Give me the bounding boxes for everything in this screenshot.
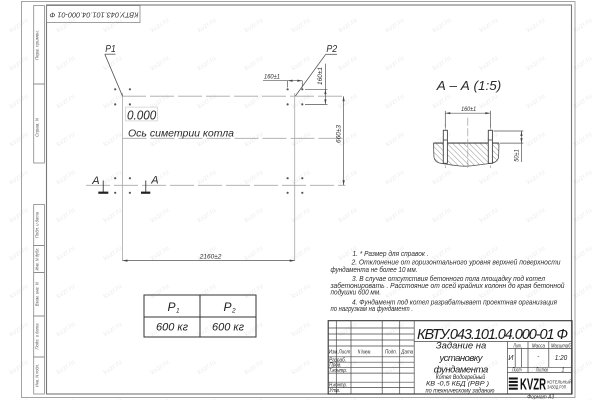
svg-text:50±1: 50±1 (513, 149, 520, 162)
svg-text:Лист: Лист (511, 368, 522, 374)
svg-text:600 кг: 600 кг (212, 322, 245, 334)
svg-text:Подп. и дата: Подп. и дата (34, 323, 39, 349)
svg-text:подушки 600 мм.: подушки 600 мм. (331, 288, 382, 297)
svg-text:Инв. N дубл.: Инв. N дубл. (34, 248, 39, 271)
svg-text:1:20: 1:20 (555, 355, 568, 362)
svg-text:установку: установку (439, 353, 484, 364)
svg-text:Дата: Дата (400, 349, 413, 355)
svg-text:Ось симетрии котла: Ось симетрии котла (128, 128, 234, 140)
svg-text:600 кг: 600 кг (156, 322, 189, 334)
svg-text:A: A (91, 175, 99, 187)
svg-text:А – А (1:5): А – А (1:5) (436, 78, 502, 93)
svg-text:фундамента: фундамента (434, 365, 489, 376)
svg-text:Котел Водогрейный: Котел Водогрейный (436, 374, 486, 381)
svg-text:KVZR: KVZR (520, 377, 546, 394)
svg-text:Т.контр.: Т.контр. (329, 368, 347, 374)
svg-text:1: 1 (562, 368, 565, 374)
svg-text:ЗАВОД РЭП: ЗАВОД РЭП (547, 384, 566, 389)
svg-text:Масса: Масса (532, 343, 545, 349)
svg-text:фундамента не более 10 мм.: фундамента не более 10 мм. (331, 265, 418, 274)
svg-text:Подп.: Подп. (385, 349, 397, 355)
svg-text:Лит.: Лит. (513, 343, 522, 349)
svg-text:1. * Размер для справок .: 1. * Размер для справок . (353, 249, 429, 258)
svg-text:160±1: 160±1 (317, 67, 324, 85)
svg-text:Перв. примен.: Перв. примен. (34, 30, 39, 60)
svg-text:Взам. инв. N: Взам. инв. N (34, 282, 39, 307)
svg-text:Формат А3: Формат А3 (527, 395, 555, 400)
svg-text:по техническому заданию: по техническому заданию (426, 389, 495, 395)
svg-text:P2: P2 (326, 44, 337, 55)
svg-text:КОТЕЛЬНЫЙ: КОТЕЛЬНЫЙ (547, 377, 572, 384)
svg-text:по нагрузкам на фундамент .: по нагрузкам на фундамент . (331, 304, 414, 313)
svg-text:Масштаб: Масштаб (551, 343, 571, 349)
svg-text:2160±2: 2160±2 (199, 253, 222, 260)
svg-text:Р: Р (168, 300, 176, 314)
svg-text:Справ. N: Справ. N (34, 117, 39, 137)
svg-text:КВ -0,5 КБД (РВР ): КВ -0,5 КБД (РВР ) (426, 382, 489, 388)
svg-text:2: 2 (231, 308, 236, 315)
svg-text:A: A (150, 175, 158, 187)
svg-text:N докум.: N докум. (358, 349, 372, 355)
svg-text:1: 1 (176, 308, 180, 315)
svg-text:P1: P1 (105, 44, 116, 55)
svg-text:Инв. N подл.: Инв. N подл. (34, 364, 39, 387)
svg-text:Р: Р (224, 300, 232, 314)
svg-text:Листов: Листов (535, 368, 548, 374)
svg-text:Утв.: Утв. (329, 388, 340, 394)
svg-text:Задание на: Задание на (436, 341, 487, 352)
svg-text:КВТУ.043.101.04.000-01 Ф: КВТУ.043.101.04.000-01 Ф (49, 11, 138, 18)
svg-text:Изм.Лист: Изм.Лист (329, 349, 351, 355)
svg-text:660±3: 660±3 (335, 125, 342, 143)
svg-text:160±1: 160±1 (264, 73, 280, 80)
svg-text:160±1: 160±1 (461, 106, 476, 113)
svg-text:0.000: 0.000 (127, 108, 156, 122)
svg-text:Подп. и дата: Подп. и дата (34, 212, 39, 238)
